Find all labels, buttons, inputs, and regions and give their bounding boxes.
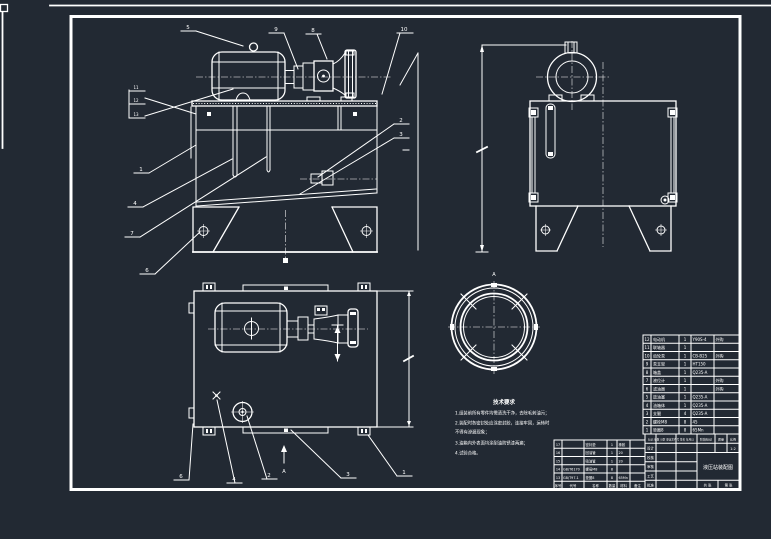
- svg-text:1: 1: [646, 428, 649, 433]
- svg-text:10: 10: [401, 27, 408, 33]
- cad-viewport: 5 9 8 10 2 3 1 4 7 6 11 12 13: [0, 0, 771, 539]
- svg-text:65Mn: 65Mn: [693, 428, 705, 433]
- svg-text:1: 1: [684, 370, 687, 375]
- coupling-top: [287, 317, 314, 340]
- view-direction-arrow: A: [281, 445, 287, 475]
- balloon: 10: [382, 27, 413, 94]
- svg-text:Q235-A: Q235-A: [693, 403, 708, 408]
- svg-text:1: 1: [611, 443, 613, 447]
- height-dimension: [476, 45, 566, 252]
- drawing-title: 液压站装配图: [703, 464, 733, 471]
- lifting-eye: [250, 43, 258, 51]
- svg-text:8: 8: [611, 468, 613, 472]
- svg-text:GB/T6170: GB/T6170: [563, 468, 580, 472]
- svg-text:65Mn: 65Mn: [619, 476, 628, 480]
- svg-text:箱盖: 箱盖: [653, 369, 661, 375]
- revision-header: 标记 处数 分区 更改文件号 签名 年月日: [648, 437, 694, 441]
- svg-text:8: 8: [684, 428, 687, 433]
- svg-text:16: 16: [556, 451, 560, 455]
- svg-text:Q235-A: Q235-A: [693, 411, 708, 416]
- balloon: 2: [318, 118, 409, 177]
- parts-list-table: 12电动机1Y90S-4外购 11联轴器1 10齿轮泵1CB-B25外购 9泵支…: [643, 335, 739, 434]
- svg-text:4: 4: [684, 411, 687, 416]
- svg-text:1: 1: [684, 345, 687, 350]
- svg-text:Y90S-4: Y90S-4: [692, 337, 708, 342]
- svg-text:共 张: 共 张: [704, 483, 712, 488]
- svg-text:比例: 比例: [730, 437, 736, 442]
- balloon: 3: [291, 430, 356, 478]
- svg-text:橡胶: 橡胶: [619, 442, 626, 447]
- front-view: [191, 43, 418, 263]
- balloon: 5: [181, 25, 243, 46]
- svg-text:7: 7: [646, 378, 649, 383]
- pump-front: [307, 50, 356, 101]
- svg-text:1: 1: [684, 403, 687, 408]
- svg-text:1: 1: [684, 386, 687, 391]
- tech-requirements-title: 技术要求: [493, 398, 516, 406]
- svg-text:Q235-A: Q235-A: [693, 370, 708, 375]
- svg-text:批准: 批准: [647, 483, 654, 488]
- svg-text:20: 20: [619, 459, 623, 463]
- svg-text:1.组装前所有零件均需清洗干净，去除毛刺油污；: 1.组装前所有零件均需清洗干净，去除毛刺油污；: [455, 410, 549, 417]
- svg-text:油箱体: 油箱体: [653, 402, 665, 408]
- balloon: 4: [217, 400, 242, 483]
- svg-text:不得有渗漏现象；: 不得有渗漏现象；: [455, 429, 489, 436]
- svg-text:材料: 材料: [620, 483, 627, 488]
- svg-text:12: 12: [644, 337, 650, 342]
- svg-text:4: 4: [646, 403, 649, 408]
- svg-text:2: 2: [646, 419, 649, 424]
- svg-text:螺母M8: 螺母M8: [586, 467, 598, 472]
- svg-text:1: 1: [139, 167, 143, 173]
- svg-text:审核: 审核: [647, 464, 654, 469]
- svg-text:吸油管: 吸油管: [586, 458, 597, 463]
- svg-text:5: 5: [186, 25, 190, 31]
- svg-text:12: 12: [133, 98, 139, 103]
- svg-text:1: 1: [611, 459, 613, 463]
- svg-text:1: 1: [611, 451, 613, 455]
- svg-text:2: 2: [267, 473, 271, 479]
- coupling-front: [285, 63, 314, 90]
- svg-text:序号: 序号: [555, 483, 562, 488]
- svg-text:滤油器: 滤油器: [653, 385, 665, 391]
- detail-view: A: [448, 272, 540, 374]
- sheet-edge: [1, 5, 771, 149]
- level-gauge: [546, 104, 555, 158]
- svg-text:7: 7: [130, 231, 134, 237]
- tech-requirements: 技术要求 1.组装前所有零件均需清洗干净，去除毛刺油污； 2.装配时各密封处应涂…: [455, 398, 550, 457]
- drain-valve-front: [300, 171, 377, 185]
- svg-text:9: 9: [274, 27, 278, 33]
- balloon: 1: [134, 145, 196, 173]
- title-block: 标记 处数 分区 更改文件号 签名 年月日 设计 校核 审核 工艺 批准 阶段标…: [645, 434, 739, 490]
- svg-text:45: 45: [693, 419, 699, 424]
- side-view: [476, 41, 677, 252]
- svg-text:8: 8: [311, 28, 315, 34]
- svg-text:1: 1: [684, 337, 687, 342]
- svg-text:6: 6: [646, 386, 649, 391]
- svg-text:13: 13: [556, 476, 560, 480]
- svg-text:Q235-A: Q235-A: [693, 395, 708, 400]
- breather-marker: [213, 392, 220, 399]
- svg-text:1: 1: [684, 353, 687, 358]
- svg-text:联轴器: 联轴器: [653, 344, 665, 350]
- svg-text:10: 10: [644, 353, 650, 358]
- svg-text:2: 2: [399, 118, 403, 124]
- svg-text:A: A: [282, 469, 286, 475]
- pump-port-side: [536, 41, 610, 110]
- svg-text:8: 8: [646, 370, 649, 375]
- svg-text:垫圈8: 垫圈8: [586, 475, 595, 480]
- extension-line: [400, 53, 418, 250]
- scale-value: 1:2: [730, 447, 735, 451]
- svg-text:11: 11: [644, 345, 650, 350]
- svg-text:GB/T97.1: GB/T97.1: [563, 476, 579, 480]
- svg-text:齿轮泵: 齿轮泵: [653, 352, 665, 358]
- svg-text:HT150: HT150: [693, 362, 707, 367]
- svg-text:9: 9: [646, 362, 649, 367]
- svg-text:17: 17: [556, 443, 560, 447]
- svg-text:6: 6: [145, 268, 149, 274]
- svg-text:4: 4: [133, 201, 137, 207]
- svg-text:代号: 代号: [570, 483, 577, 488]
- svg-text:1: 1: [684, 362, 687, 367]
- svg-text:外购: 外购: [716, 385, 724, 391]
- svg-text:校核: 校核: [647, 455, 654, 460]
- motor-front: [212, 43, 285, 100]
- svg-text:2.装配时各密封处应涂密封胶，连接牢固，运转时: 2.装配时各密封处应涂密封胶，连接牢固，运转时: [455, 420, 550, 427]
- svg-text:A: A: [492, 272, 496, 278]
- svg-text:泵支架: 泵支架: [653, 361, 665, 367]
- drain-plug-top: [231, 401, 254, 423]
- svg-text:20: 20: [619, 451, 623, 455]
- svg-text:电动机: 电动机: [653, 336, 665, 342]
- balloon: 6: [140, 232, 200, 274]
- svg-text:数量: 数量: [609, 483, 616, 488]
- balloon: 3: [300, 132, 409, 194]
- svg-text:3.油箱内外表面均涂耐油防锈漆两遍；: 3.油箱内外表面均涂耐油防锈漆两遍；: [455, 440, 528, 447]
- svg-text:放油塞: 放油塞: [653, 394, 665, 400]
- svg-text:备注: 备注: [634, 483, 641, 488]
- svg-text:垫圈8: 垫圈8: [653, 427, 664, 433]
- balloon: 6: [174, 424, 193, 480]
- top-view: A: [189, 283, 413, 475]
- svg-text:1: 1: [402, 470, 406, 476]
- svg-text:14: 14: [556, 468, 560, 472]
- tank-front: [191, 101, 377, 258]
- svg-text:11: 11: [133, 85, 139, 90]
- balloon: 1: [368, 435, 412, 476]
- top-view-balloons: 6 4 2 3 1: [174, 400, 412, 483]
- svg-text:1: 1: [684, 378, 687, 383]
- svg-text:15: 15: [556, 459, 560, 463]
- svg-text:螺栓M8: 螺栓M8: [653, 418, 667, 424]
- pump-top: [314, 306, 358, 361]
- svg-text:外购: 外购: [716, 352, 724, 358]
- parts-list-extension-table: 17密封垫1橡胶 16回油管120 15吸油管120 14GB/T6170螺母M…: [554, 440, 645, 490]
- svg-text:工艺: 工艺: [647, 473, 654, 478]
- svg-text:液位计: 液位计: [653, 377, 665, 383]
- svg-text:外购: 外购: [716, 377, 724, 383]
- svg-text:13: 13: [133, 112, 139, 117]
- svg-text:1: 1: [684, 395, 687, 400]
- cad-drawing: 5 9 8 10 2 3 1 4 7 6 11 12 13: [0, 0, 771, 539]
- svg-text:8: 8: [611, 476, 613, 480]
- svg-text:CB-B25: CB-B25: [693, 353, 708, 358]
- parts-list-header: 序号 代号 名称 数量 材料 备注: [555, 483, 642, 488]
- balloon: 2: [247, 416, 277, 479]
- balloon: 8: [306, 28, 327, 59]
- svg-text:设计: 设计: [647, 446, 654, 451]
- svg-text:第 张: 第 张: [725, 483, 733, 488]
- selection-grip: [1, 5, 8, 12]
- svg-text:质量: 质量: [718, 437, 724, 442]
- svg-text:5: 5: [646, 395, 649, 400]
- legs-side: [536, 206, 671, 251]
- drawing-frame: [71, 17, 740, 490]
- svg-text:6: 6: [179, 474, 183, 480]
- width-dimension: [377, 291, 413, 427]
- svg-text:3: 3: [346, 472, 350, 478]
- balloon: 9: [269, 27, 298, 69]
- svg-text:名称: 名称: [592, 483, 599, 488]
- svg-text:8: 8: [684, 419, 687, 424]
- svg-text:3: 3: [646, 411, 649, 416]
- svg-text:阶段标记: 阶段标记: [700, 437, 712, 442]
- balloon: 4: [128, 159, 232, 207]
- svg-text:4.试验合格。: 4.试验合格。: [455, 450, 481, 457]
- motor-top: [215, 303, 287, 352]
- svg-text:外购: 外购: [716, 336, 724, 342]
- svg-text:支腿: 支腿: [653, 410, 661, 416]
- svg-text:3: 3: [399, 132, 403, 138]
- svg-text:密封垫: 密封垫: [586, 442, 597, 447]
- svg-text:回油管: 回油管: [586, 450, 597, 455]
- legs-front: [193, 207, 377, 263]
